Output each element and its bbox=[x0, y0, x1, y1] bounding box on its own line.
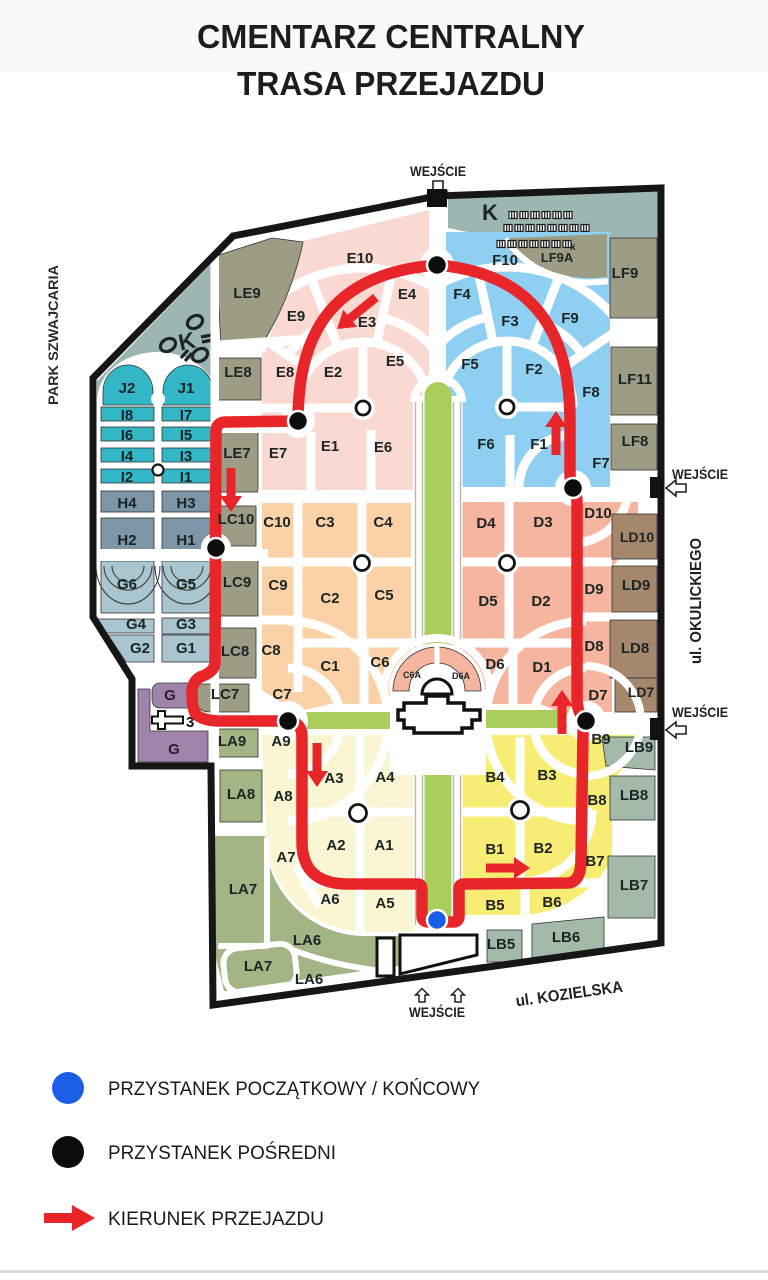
svg-text:ul. OKULICKIEGO: ul. OKULICKIEGO bbox=[688, 538, 705, 664]
svg-text:G4: G4 bbox=[126, 616, 147, 633]
svg-text:A9: A9 bbox=[271, 733, 290, 750]
svg-text:WEJŚCIE: WEJŚCIE bbox=[672, 703, 728, 720]
svg-text:E5: E5 bbox=[386, 353, 404, 370]
svg-text:C6A: C6A bbox=[403, 670, 422, 680]
svg-text:J1: J1 bbox=[178, 380, 195, 397]
svg-text:G6: G6 bbox=[117, 576, 137, 593]
svg-text:A4: A4 bbox=[375, 769, 395, 786]
svg-text:A8: A8 bbox=[273, 788, 292, 805]
svg-text:LB8: LB8 bbox=[620, 787, 648, 804]
svg-text:B1: B1 bbox=[485, 841, 504, 858]
svg-text:C8: C8 bbox=[261, 642, 280, 659]
svg-text:E6: E6 bbox=[374, 439, 392, 456]
svg-text:F3: F3 bbox=[501, 313, 519, 330]
svg-text:LC9: LC9 bbox=[223, 574, 251, 591]
svg-text:WEJŚCIE: WEJŚCIE bbox=[672, 465, 728, 482]
svg-text:LD10: LD10 bbox=[620, 529, 654, 545]
svg-text:LB6: LB6 bbox=[552, 929, 580, 946]
svg-text:B5: B5 bbox=[485, 897, 504, 914]
svg-text:D5: D5 bbox=[478, 593, 497, 610]
svg-text:E3: E3 bbox=[358, 314, 376, 331]
svg-text:D8: D8 bbox=[584, 638, 603, 655]
svg-text:G5: G5 bbox=[176, 576, 196, 593]
svg-text:E7: E7 bbox=[269, 445, 287, 462]
svg-text:G: G bbox=[168, 741, 180, 758]
svg-text:I1: I1 bbox=[180, 469, 193, 486]
svg-text:LB9: LB9 bbox=[625, 739, 653, 756]
svg-text:LA6: LA6 bbox=[295, 971, 323, 988]
svg-text:LB7: LB7 bbox=[620, 877, 648, 894]
svg-text:E4: E4 bbox=[398, 286, 417, 303]
svg-text:E2: E2 bbox=[324, 364, 342, 381]
svg-text:H2: H2 bbox=[117, 532, 136, 549]
svg-text:I3: I3 bbox=[180, 448, 193, 465]
svg-text:LA6: LA6 bbox=[293, 932, 321, 949]
svg-text:H1: H1 bbox=[176, 532, 195, 549]
svg-text:F6: F6 bbox=[477, 436, 495, 453]
svg-text:CMENTARZ CENTRALNY: CMENTARZ CENTRALNY bbox=[197, 18, 585, 55]
svg-text:G2: G2 bbox=[130, 640, 150, 657]
svg-text:LD7: LD7 bbox=[628, 684, 655, 700]
svg-text:G1: G1 bbox=[176, 640, 196, 657]
svg-text:A3: A3 bbox=[324, 770, 343, 787]
svg-text:I5: I5 bbox=[180, 427, 193, 444]
svg-text:I8: I8 bbox=[121, 407, 134, 424]
svg-text:C5: C5 bbox=[374, 587, 393, 604]
svg-text:F7: F7 bbox=[592, 455, 610, 472]
svg-text:LA9: LA9 bbox=[218, 733, 246, 750]
svg-text:F5: F5 bbox=[461, 356, 479, 373]
svg-text:LF9A: LF9A bbox=[541, 250, 574, 265]
svg-text:LD8: LD8 bbox=[621, 640, 649, 657]
svg-text:C4: C4 bbox=[373, 514, 393, 531]
svg-text:F9: F9 bbox=[561, 310, 579, 327]
svg-text:B8: B8 bbox=[587, 792, 606, 809]
svg-text:C2: C2 bbox=[320, 590, 339, 607]
svg-text:WEJŚCIE: WEJŚCIE bbox=[409, 1003, 465, 1020]
svg-text:D6A: D6A bbox=[452, 671, 471, 681]
svg-text:LA7: LA7 bbox=[244, 958, 272, 975]
svg-text:LE9: LE9 bbox=[233, 285, 261, 302]
svg-text:WEJŚCIE: WEJŚCIE bbox=[410, 162, 466, 179]
svg-text:D2: D2 bbox=[531, 593, 550, 610]
svg-text:H3: H3 bbox=[176, 495, 195, 512]
svg-text:D3: D3 bbox=[533, 514, 552, 531]
svg-text:KIERUNEK PRZEJAZDU: KIERUNEK PRZEJAZDU bbox=[108, 1209, 324, 1230]
svg-text:C9: C9 bbox=[268, 577, 287, 594]
svg-text:D6: D6 bbox=[485, 656, 504, 673]
svg-text:K: K bbox=[482, 200, 498, 225]
svg-text:G: G bbox=[164, 687, 176, 704]
svg-text:G3: G3 bbox=[176, 616, 196, 633]
svg-text:A5: A5 bbox=[375, 895, 394, 912]
svg-text:LC7: LC7 bbox=[211, 686, 239, 703]
svg-text:A6: A6 bbox=[320, 891, 339, 908]
svg-text:D4: D4 bbox=[476, 515, 496, 532]
svg-text:C6: C6 bbox=[370, 654, 389, 671]
svg-text:J2: J2 bbox=[119, 380, 136, 397]
svg-text:PRZYSTANEK POCZĄTKOWY / KOŃCOW: PRZYSTANEK POCZĄTKOWY / KOŃCOWY bbox=[108, 1079, 480, 1100]
svg-text:PRZYSTANEK POŚREDNI: PRZYSTANEK POŚREDNI bbox=[108, 1142, 336, 1164]
svg-text:TRASA PRZEJAZDU: TRASA PRZEJAZDU bbox=[237, 65, 545, 102]
svg-text:PARK SZWAJCARIA: PARK SZWAJCARIA bbox=[45, 265, 61, 405]
svg-text:LB5: LB5 bbox=[487, 936, 515, 953]
svg-text:I7: I7 bbox=[180, 407, 193, 424]
svg-text:D9: D9 bbox=[584, 581, 603, 598]
svg-text:E10: E10 bbox=[347, 250, 374, 267]
svg-text:LD9: LD9 bbox=[622, 577, 650, 594]
svg-text:F1: F1 bbox=[530, 436, 548, 453]
svg-text:I4: I4 bbox=[121, 448, 134, 465]
svg-text:F10: F10 bbox=[492, 252, 518, 269]
svg-text:B4: B4 bbox=[485, 769, 505, 786]
svg-text:E9: E9 bbox=[287, 308, 305, 325]
svg-text:LF9: LF9 bbox=[612, 265, 639, 282]
svg-text:I6: I6 bbox=[121, 427, 134, 444]
svg-text:H4: H4 bbox=[117, 495, 137, 512]
svg-text:LE7: LE7 bbox=[223, 445, 251, 462]
svg-text:F8: F8 bbox=[582, 384, 600, 401]
svg-text:LA7: LA7 bbox=[229, 881, 257, 898]
svg-text:LC8: LC8 bbox=[221, 643, 249, 660]
svg-text:I2: I2 bbox=[121, 469, 134, 486]
svg-text:LA8: LA8 bbox=[227, 786, 255, 803]
svg-text:C3: C3 bbox=[315, 514, 334, 531]
svg-text:LC10: LC10 bbox=[218, 511, 255, 528]
svg-text:C7: C7 bbox=[272, 686, 291, 703]
svg-text:A1: A1 bbox=[374, 837, 393, 854]
svg-text:LF8: LF8 bbox=[622, 433, 649, 450]
svg-text:F4: F4 bbox=[453, 286, 471, 303]
svg-text:B6: B6 bbox=[542, 894, 561, 911]
svg-text:B7: B7 bbox=[585, 853, 604, 870]
svg-text:B2: B2 bbox=[533, 840, 552, 857]
svg-text:E8: E8 bbox=[276, 364, 294, 381]
svg-text:C1: C1 bbox=[320, 658, 339, 675]
svg-text:A2: A2 bbox=[326, 837, 345, 854]
svg-text:A7: A7 bbox=[276, 849, 295, 866]
svg-text:F2: F2 bbox=[525, 361, 543, 378]
svg-text:D10: D10 bbox=[584, 505, 612, 522]
svg-text:B9: B9 bbox=[591, 731, 610, 748]
svg-text:D1: D1 bbox=[532, 659, 551, 676]
svg-text:E1: E1 bbox=[321, 438, 339, 455]
svg-text:LF11: LF11 bbox=[618, 371, 652, 388]
svg-text:C10: C10 bbox=[263, 514, 291, 531]
svg-text:B3: B3 bbox=[537, 767, 556, 784]
svg-text:D7: D7 bbox=[588, 687, 607, 704]
svg-text:LE8: LE8 bbox=[224, 364, 252, 381]
